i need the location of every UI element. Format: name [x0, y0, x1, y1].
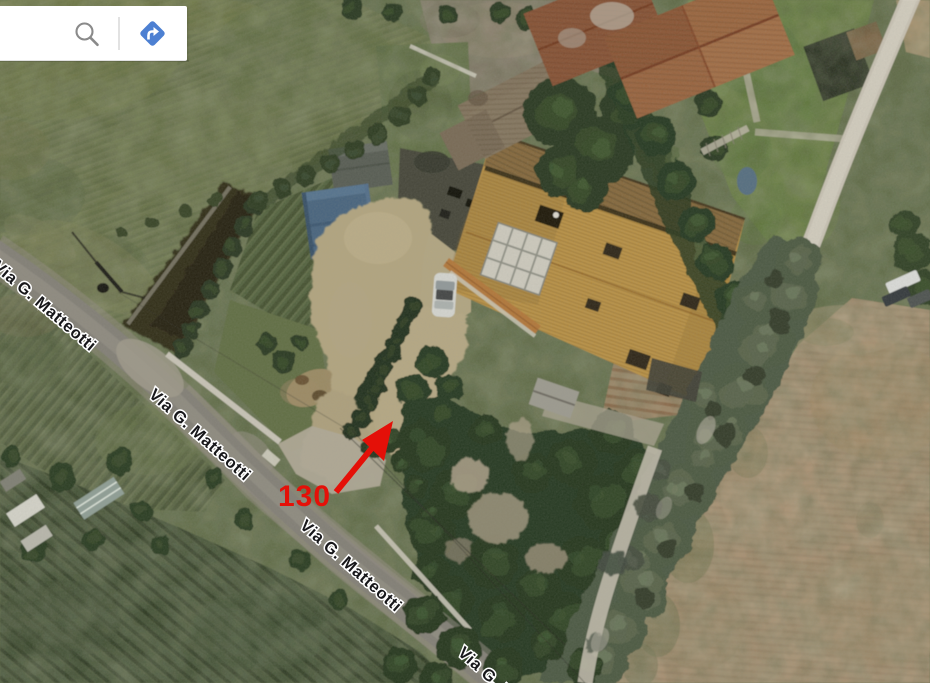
svg-text:130: 130 — [278, 480, 331, 513]
